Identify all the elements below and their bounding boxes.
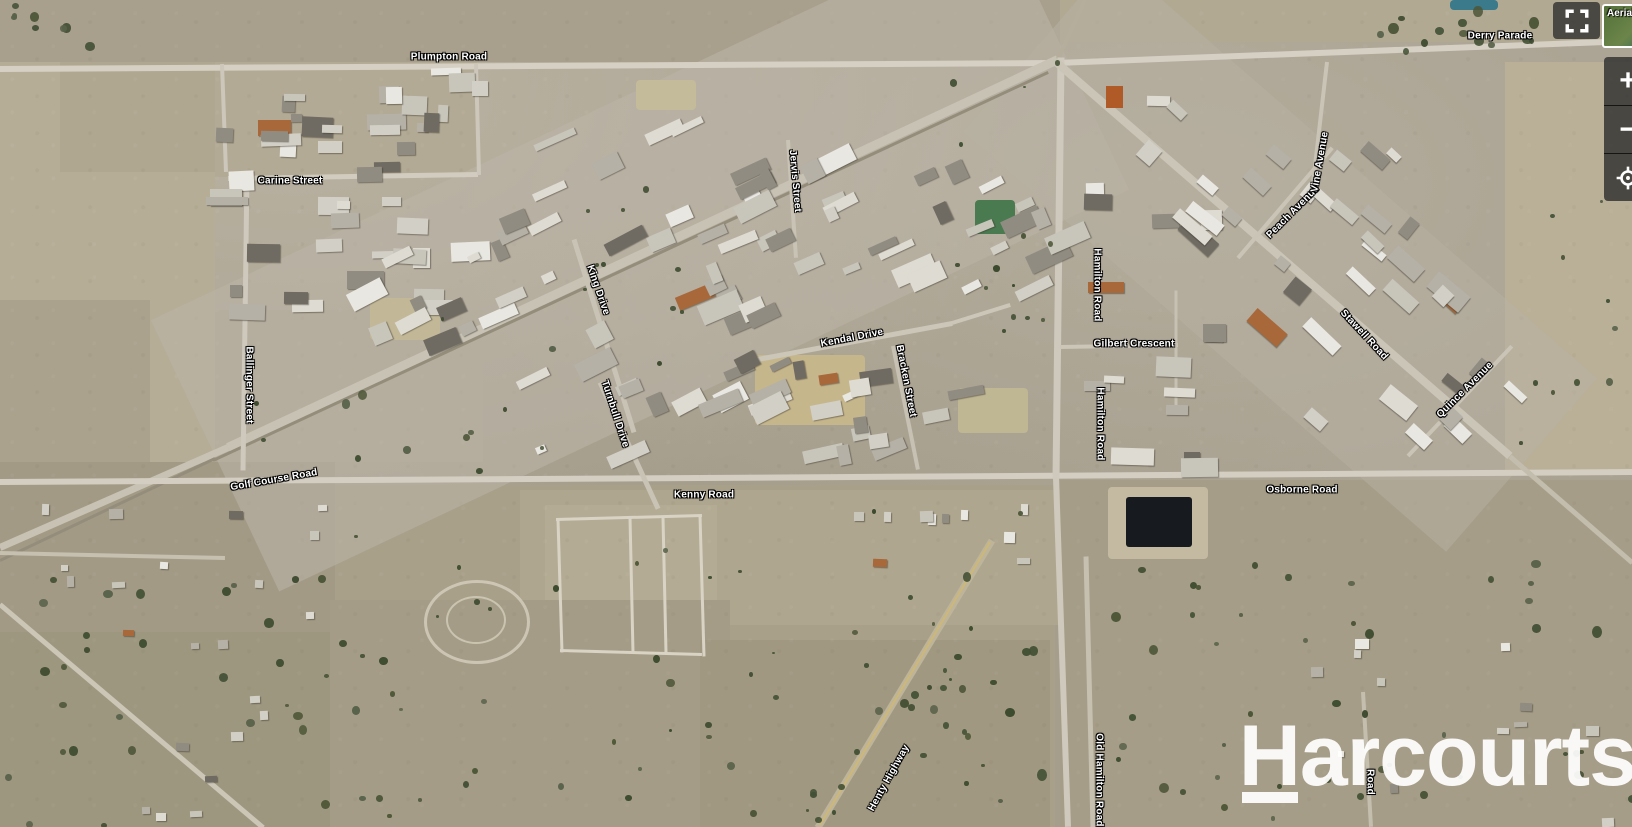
tree [1239,613,1243,617]
building [321,124,341,133]
tree [26,821,33,827]
tree [1592,626,1602,638]
building [284,94,305,102]
tree [1012,284,1015,287]
tree [1550,214,1555,218]
tree [59,702,66,708]
building [230,285,242,297]
building [231,732,243,741]
tree [399,708,403,711]
tree [1332,700,1340,707]
tree [264,618,273,628]
building [250,696,260,704]
harcourts-underline [1242,792,1298,803]
road-label: Hamilton Road [1092,248,1103,321]
tree [1519,441,1523,445]
tree [1037,769,1047,781]
building [61,565,68,571]
zoom-controls: + − [1604,57,1632,201]
tree [222,587,231,596]
building [942,514,949,523]
tree [261,438,266,442]
tree [116,714,123,720]
tree [586,209,590,213]
tree [1532,624,1541,632]
locate-button[interactable] [1604,153,1632,201]
building [176,743,189,751]
tree [101,823,107,827]
road-label: Gilbert Crescent [1093,339,1174,350]
map-canvas[interactable]: Plumpton RoadDerry ParadeCarine StreetJe… [0,0,1632,827]
tree [299,725,307,735]
tree [1531,560,1540,568]
tree [342,399,351,408]
building [1501,643,1510,651]
building [190,643,199,649]
tree [292,576,300,583]
tree [85,42,95,51]
tree [358,390,367,400]
tree [472,768,478,774]
tree [643,186,650,193]
tree [1348,581,1354,586]
tree [852,630,858,635]
building [142,807,151,814]
building [291,114,302,122]
building [190,810,202,816]
building [854,512,864,521]
building [920,511,933,522]
building [228,303,264,320]
building [316,239,342,253]
tree [1435,27,1444,35]
tree [352,706,360,715]
road-label: Derry Parade [1468,31,1533,42]
tree [1528,581,1534,586]
building [306,612,314,619]
building [961,510,968,520]
tree [1180,789,1186,795]
tree [1421,39,1428,47]
tree [1488,42,1494,48]
tree [1388,23,1398,34]
building [318,141,342,153]
tree [376,795,383,802]
building [1203,324,1226,342]
building [853,416,868,433]
tree [276,659,283,667]
building [396,218,428,236]
building [259,710,267,720]
building [396,142,414,155]
building [1180,457,1218,477]
building [1310,667,1322,678]
tree [11,15,17,20]
tree [1403,48,1409,55]
tree [1377,31,1384,39]
building [424,112,440,132]
building [1004,532,1015,543]
tree [5,774,11,781]
tree [387,814,391,818]
road-label: Hamilton Road [1095,387,1106,460]
tree [1473,6,1482,17]
building [1354,650,1361,658]
building [331,212,360,228]
road-label: Plumpton Road [411,52,487,63]
tree [40,667,50,676]
harcourts-watermark-text: Harcourts [1239,708,1632,804]
building [1602,818,1615,827]
tree [61,664,67,670]
tree [1351,621,1356,626]
building [216,128,234,142]
tree [1303,638,1308,644]
map-type-label: Aerial [1607,8,1632,19]
tree [321,800,330,810]
building [284,292,308,304]
building [247,244,280,262]
tree [457,565,461,570]
tree [360,654,364,658]
tree [773,695,779,700]
tree [1190,612,1195,618]
road-label: Old Hamilton Road [1094,733,1105,826]
building [1104,376,1124,384]
building [67,576,75,587]
building [357,167,382,183]
building [382,197,401,206]
building [160,562,169,569]
building [218,640,228,650]
tree [69,746,77,756]
harcourts-watermark: Harcourts [1239,713,1632,799]
tree [1005,708,1015,717]
tree [231,583,237,588]
building [1106,86,1123,108]
tree [488,607,492,611]
tree [60,749,66,755]
tree [625,795,631,801]
tree [1221,804,1228,811]
building [123,630,134,637]
building [229,511,243,519]
building [1164,387,1195,397]
road-label: Carine Street [258,176,323,187]
tree [549,346,555,352]
tree [1215,775,1220,780]
tree [993,265,1000,271]
building [1355,639,1369,649]
tree [943,668,947,672]
tree [1025,316,1030,321]
tree [379,657,388,665]
tree [583,288,586,292]
tree [943,722,949,729]
map-type-aerial-thumbnail[interactable]: Aerial [1602,4,1632,48]
tree [318,575,326,583]
building [872,559,886,568]
tree [708,576,711,579]
building [472,81,488,96]
building [206,197,248,205]
tree [136,589,145,599]
tree [1002,329,1006,333]
fullscreen-button[interactable] [1553,2,1600,39]
tree [930,705,939,714]
tree [32,25,39,31]
tree [293,712,303,720]
tree [476,468,483,474]
building [255,580,263,588]
building [1377,678,1385,686]
tree [749,672,754,677]
tree [815,817,821,823]
tree [663,548,668,552]
tree [969,626,973,631]
building [112,581,125,588]
tree [920,753,926,759]
tree [984,286,989,290]
tree [940,685,947,692]
building [261,131,288,141]
building [884,512,891,522]
zoom-in-button[interactable]: + [1604,57,1632,105]
tree [838,784,844,790]
building [156,813,166,821]
building [370,125,400,136]
zoom-out-button[interactable]: − [1604,105,1632,153]
building [318,505,327,511]
road-label: Ballinger Street [244,346,255,423]
tree [1119,743,1127,750]
tree [900,699,909,708]
tree [810,792,817,798]
locate-icon [1615,165,1632,191]
building [1166,405,1188,415]
fullscreen-icon [1564,8,1590,34]
building [337,201,350,210]
dark-pond [1126,497,1192,547]
tree [854,749,860,756]
building [386,87,402,104]
tree [908,595,913,600]
building [1084,194,1112,211]
tree [964,781,968,786]
road-label: Henty Highway [866,743,912,813]
building [1017,558,1030,564]
tree [750,810,757,817]
building [1147,96,1170,106]
tree [727,762,735,770]
tree [418,798,423,802]
tree [436,615,439,618]
building [1111,447,1154,465]
ground-detail [636,80,696,110]
tree [1285,574,1291,581]
tree [84,647,90,652]
tree [990,680,997,686]
tree [911,691,919,699]
building [310,531,319,540]
tree [621,208,625,212]
tree [50,577,56,583]
tree [403,446,411,453]
tree [612,739,616,744]
tree [1116,757,1121,762]
tree [1021,233,1026,239]
tree [1196,585,1202,590]
building [204,776,217,782]
tree [927,685,932,690]
tree [1458,19,1466,27]
road-label: Kenny Road [674,490,734,501]
road-label: Osborne Road [1266,485,1337,496]
tree [359,796,365,801]
building [868,432,889,449]
tree [1214,642,1219,646]
tree [670,306,676,312]
tree [1459,30,1468,37]
building [1156,357,1192,379]
building [109,509,124,519]
tree [474,599,481,605]
tree [553,585,559,591]
tree [680,310,684,314]
tree [1252,562,1258,569]
tree [666,679,674,687]
tree [1551,390,1556,395]
building [42,504,49,515]
